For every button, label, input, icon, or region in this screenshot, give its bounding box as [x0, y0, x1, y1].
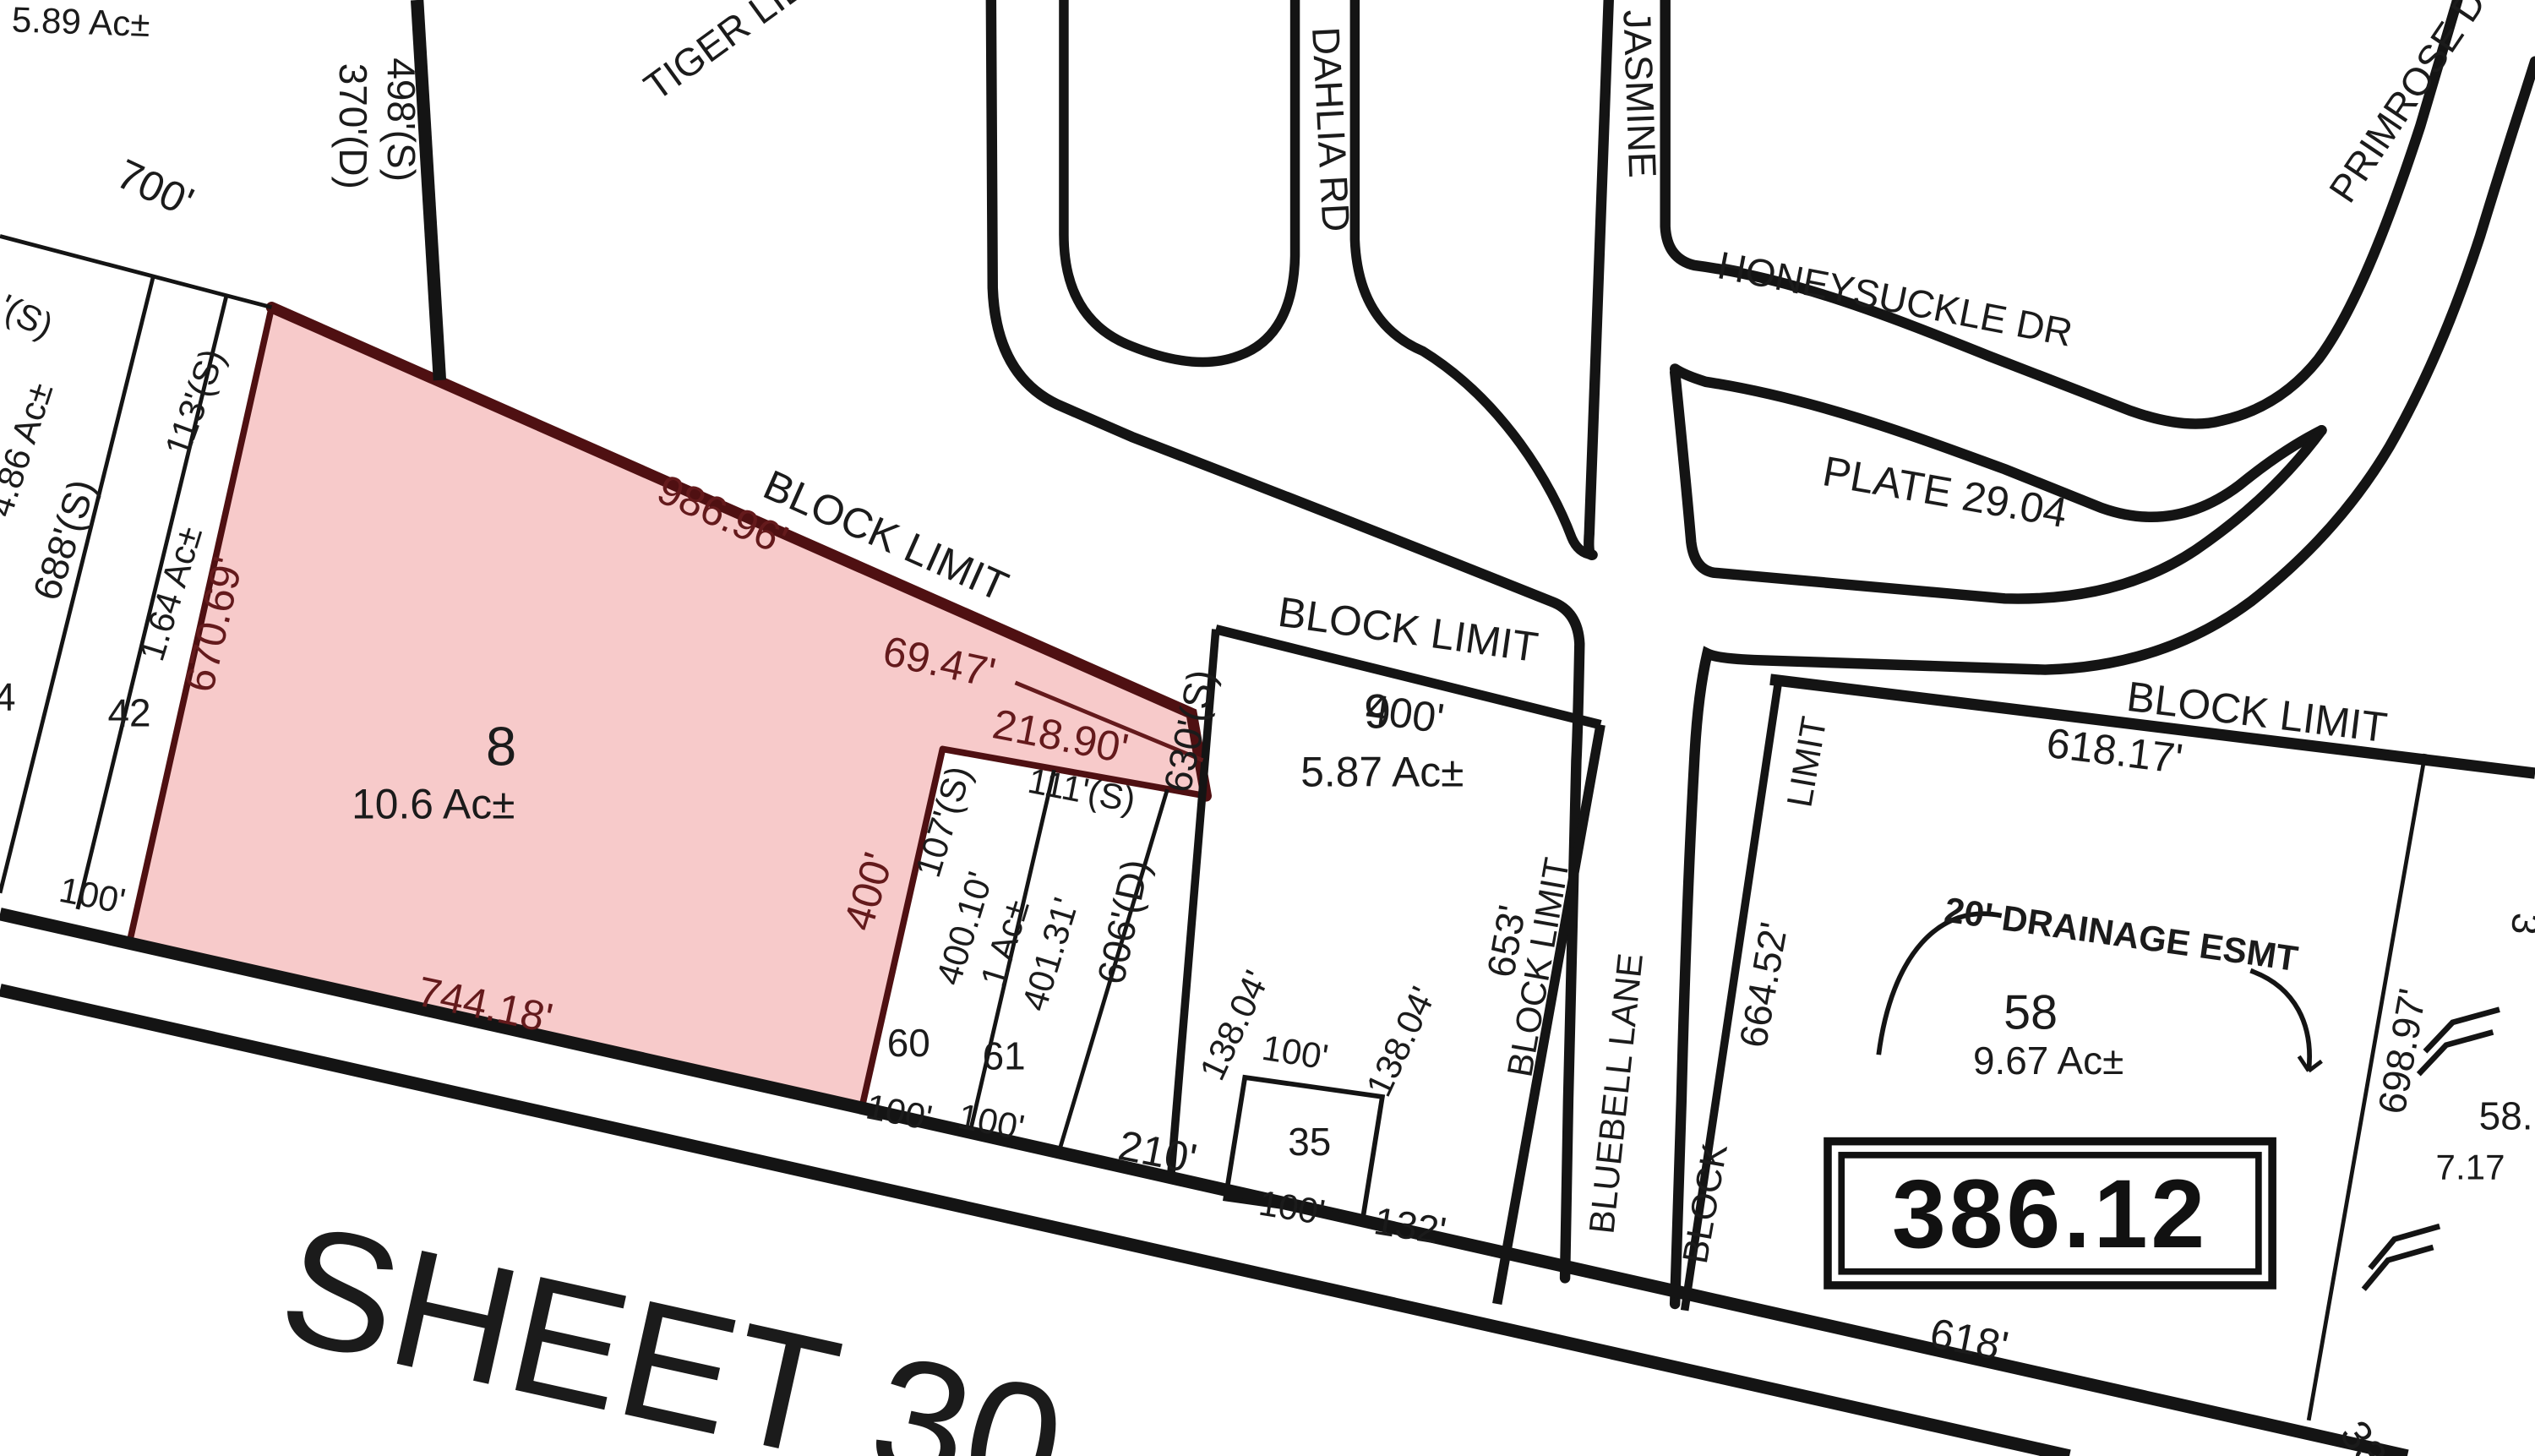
parcel-number-8: 8 [486, 720, 516, 775]
dim-113-s: 113'(S) [160, 345, 231, 461]
dim-138-04-east: 138.04' [1361, 982, 1442, 1102]
lot-number-60: 60 [887, 1026, 930, 1065]
block-limit-58-block: BLOCK [1677, 1141, 1733, 1266]
dim-100-lot60: 100' [863, 1089, 935, 1137]
dim-688-s: 688'(S) [29, 476, 104, 606]
dim-100-lot42: 100' [57, 872, 128, 919]
dim-700: 700' [111, 152, 199, 223]
dim-132: 132' [1371, 1203, 1449, 1253]
easement-drainage: 20' DRAINAGE ESMT [1943, 892, 2300, 977]
block-limit-parcel9: BLOCK LIMIT [1276, 590, 1541, 668]
lot-number-35: 35 [1288, 1125, 1331, 1164]
dim-218-90: 218.90' [989, 702, 1131, 770]
lot-number-42: 42 [108, 695, 151, 734]
dim-498-s: 498'(S) [380, 57, 419, 182]
dim-664-52: 664.52' [1736, 919, 1796, 1050]
parcel-area-9: 5.87 Ac± [1300, 750, 1464, 793]
street-tiger-lily: TIGER LIL [639, 0, 810, 108]
dim-618-17: 618.17' [2044, 722, 2185, 780]
dim-s-partial: '(S) [0, 289, 58, 345]
parcel-number-58: 58 [2003, 990, 2058, 1039]
dim-400-parcel8: 400' [837, 848, 900, 935]
sheet-title: SHEET 30. [268, 1199, 1122, 1456]
street-honeysuckle-dr: HONEYSUCKLE DR [1715, 248, 2075, 354]
dim-698-97: 698.97' [2374, 986, 2434, 1117]
street-bluebell-lane: BLUEBELL LANE [1584, 952, 1649, 1235]
parcel-area-8: 10.6 Ac± [352, 783, 515, 826]
dim-210: 210' [1115, 1124, 1200, 1181]
dim-100-lot35-bottom: 100' [1257, 1186, 1327, 1231]
street-primrose-dr: PRIMROSE D [2324, 0, 2494, 210]
parcel-number-9: 9 [1364, 690, 1391, 738]
parcel-area-58: 9.67 Ac± [1973, 1044, 2123, 1082]
dim-69-47: 69.47' [880, 630, 999, 695]
lot-number-61: 61 [983, 1039, 1026, 1077]
block-limit-58-limit: LIMIT [1782, 714, 1833, 810]
plate-ref-2904: PLATE 29.04 [1819, 450, 2069, 534]
dim-100-lot61: 100' [955, 1099, 1027, 1146]
tax-map-sheet: 386.12 5.89 Ac±'(S)700'498'(S)370'(D)TIG… [0, 0, 2535, 1456]
lot-number-4-partial: 4 [0, 679, 16, 718]
dim-acreage-589: 5.89 Ac± [11, 3, 150, 43]
dim-630-s: 630'(S) [1159, 667, 1223, 796]
dim-58-partial: 58. [2479, 1099, 2533, 1137]
dim-acreage-486: 4.86 Ac± [0, 379, 59, 521]
dim-100-lot35-top: 100' [1260, 1030, 1331, 1076]
street-jasmine: JASMINE [1616, 9, 1660, 179]
dim-107-s: 107'(S) [911, 762, 979, 881]
dim-3-partial: 3 [2503, 911, 2535, 936]
block-limit-parcel8: BLOCK LIMIT [758, 463, 1014, 608]
dim-7-17: 7.17 [2436, 1150, 2505, 1186]
label-layer: 5.89 Ac±'(S)700'498'(S)370'(D)TIGER LILD… [0, 0, 2535, 1456]
dim-618: 618' [1927, 1311, 2011, 1368]
dim-606-d: 606'(D) [1093, 856, 1158, 988]
map-canvas[interactable]: 386.12 5.89 Ac±'(S)700'498'(S)370'(D)TIG… [0, 0, 2535, 1456]
dim-33-partial: 33 [2333, 1414, 2394, 1456]
dim-744-18: 744.18' [414, 970, 556, 1039]
street-dahlia-rd: DAHLIA RD [1304, 26, 1354, 233]
dim-370-d: 370'(D) [331, 63, 370, 189]
